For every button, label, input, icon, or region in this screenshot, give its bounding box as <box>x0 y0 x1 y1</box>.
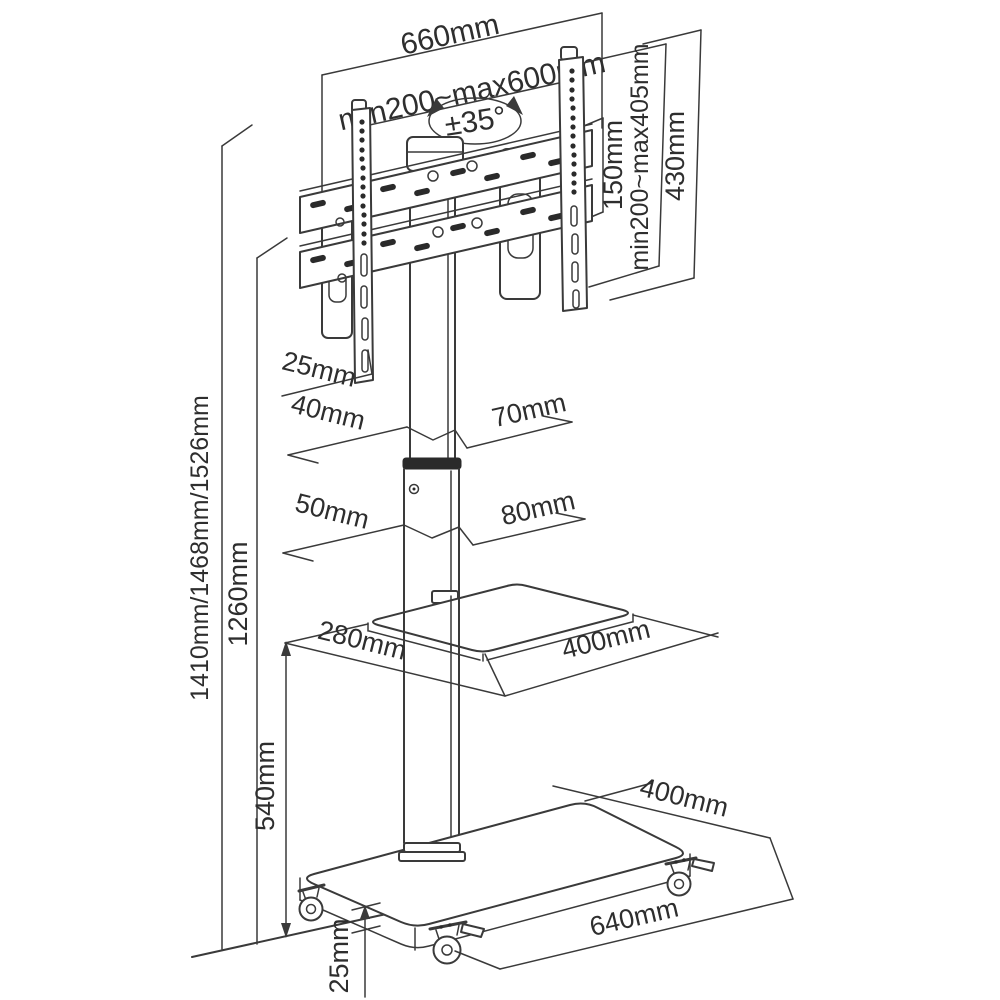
dim-label-lower-column-width: 80mm <box>498 485 578 531</box>
dim-label-bracket-hook-depth: 25mm <box>279 346 359 393</box>
dim-label-base-thickness: 25mm <box>324 918 354 993</box>
dim-label-total-heights: 1410mm/1468mm/1526mm <box>186 395 214 701</box>
dim-upper-column-section: 40mm 70mm <box>288 387 572 463</box>
left-vesa-strip <box>352 100 373 383</box>
dim-column-height: 1260mm <box>223 238 287 944</box>
dim-label-upper-column-depth: 40mm <box>288 389 368 436</box>
diagram-canvas: 1410mm/1468mm/1526mm 1260mm 540mm 660mm … <box>0 0 1000 1000</box>
dim-label-base-depth: 400mm <box>637 772 732 823</box>
pole-base-flange <box>399 843 465 861</box>
dim-label-bracket-width: 660mm <box>398 8 503 62</box>
dim-lower-column-section: 50mm 80mm <box>283 485 585 561</box>
dim-label-vesa-hole-spacing: 150mm <box>598 120 628 210</box>
caster-brake-lever <box>461 924 484 937</box>
dim-label-lower-column-depth: 50mm <box>292 488 372 535</box>
dim-shelf-height: 540mm <box>250 641 291 938</box>
dim-label-column-height: 1260mm <box>223 541 253 646</box>
caster-brake-lever <box>692 859 714 871</box>
dim-total-heights: 1410mm/1468mm/1526mm <box>186 125 252 949</box>
right-vesa-strip <box>559 47 587 311</box>
dim-label-bracket-height: 430mm <box>660 111 690 201</box>
caster-front <box>430 922 484 964</box>
caster-left <box>299 885 324 921</box>
pole-lower <box>404 469 459 843</box>
dim-label-vesa-vertical-range: min200~max405mm <box>626 43 654 270</box>
dim-label-shelf-height: 540mm <box>250 741 280 831</box>
telescope-collar <box>403 458 461 469</box>
tv-stand-dimension-diagram: 1410mm/1468mm/1526mm 1260mm 540mm 660mm … <box>0 0 1000 1000</box>
